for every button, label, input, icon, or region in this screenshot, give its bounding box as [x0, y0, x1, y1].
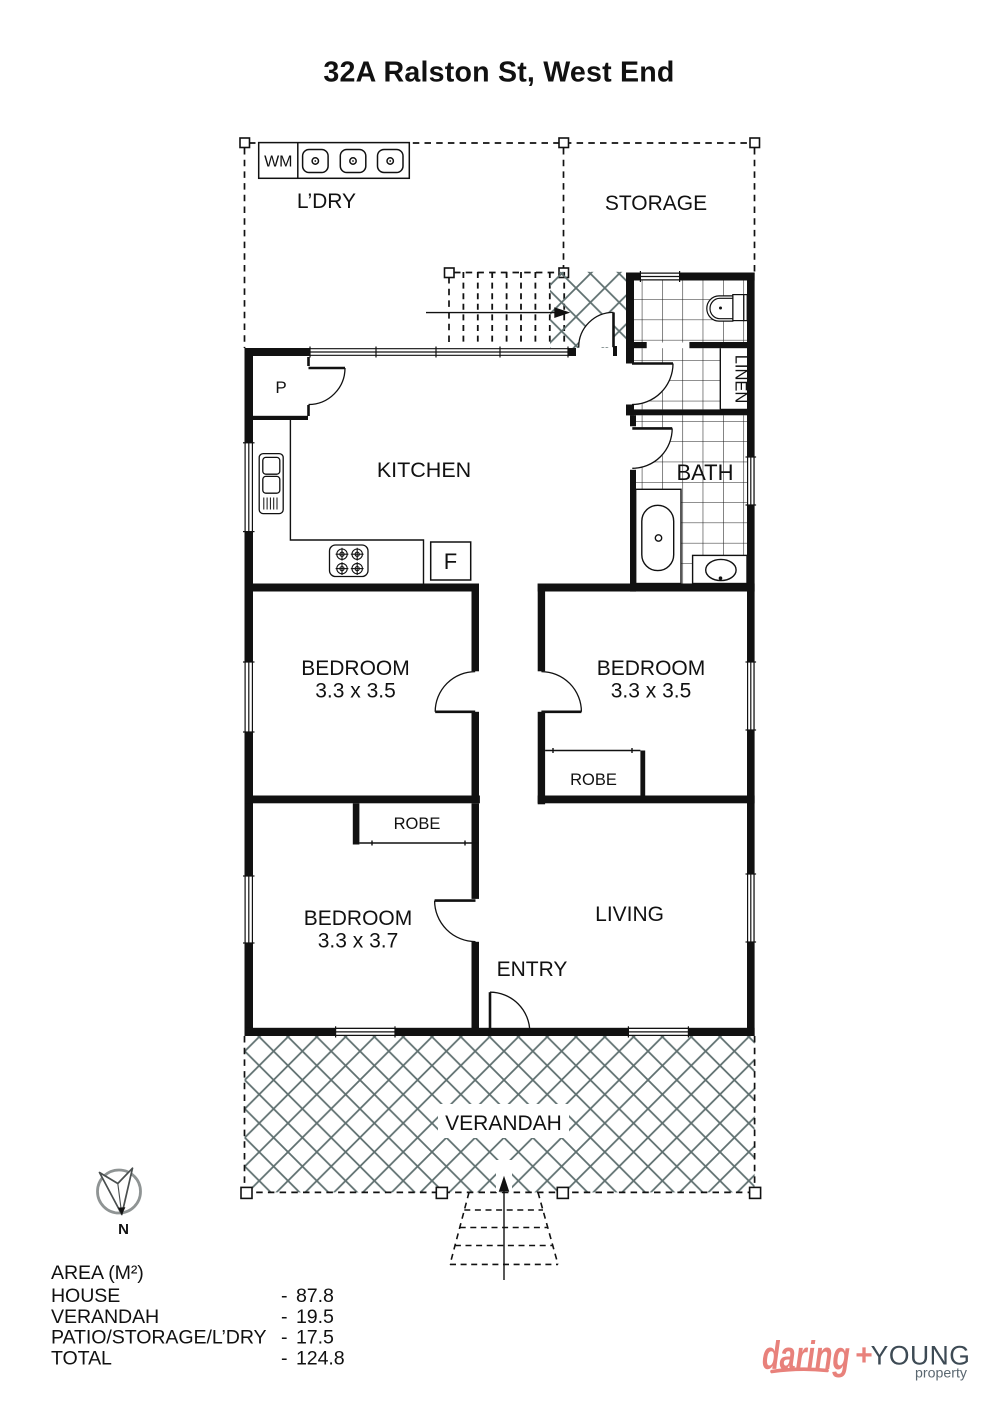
svg-text:BEDROOM: BEDROOM	[304, 907, 413, 930]
svg-text:ROBE: ROBE	[394, 815, 441, 833]
svg-text:P: P	[275, 378, 286, 397]
svg-text:VERANDAH: VERANDAH	[445, 1112, 562, 1135]
svg-text:124.8: 124.8	[296, 1347, 345, 1369]
svg-text:BEDROOM: BEDROOM	[597, 657, 706, 680]
svg-text:N: N	[118, 1221, 129, 1238]
svg-text:32A Ralston St, West End: 32A Ralston St, West End	[323, 57, 674, 89]
svg-text:17.5: 17.5	[296, 1327, 334, 1349]
svg-text:-: -	[281, 1347, 287, 1369]
svg-text:LINEN: LINEN	[732, 355, 750, 404]
svg-text:HOUSE: HOUSE	[51, 1285, 120, 1307]
svg-text:AREA (M²): AREA (M²)	[51, 1262, 144, 1284]
svg-text:ROBE: ROBE	[570, 771, 617, 789]
svg-text:STORAGE: STORAGE	[605, 192, 707, 215]
svg-text:WM: WM	[264, 154, 292, 171]
svg-text:BATH: BATH	[676, 460, 733, 485]
svg-text:87.8: 87.8	[296, 1285, 334, 1307]
svg-text:LIVING: LIVING	[595, 903, 664, 926]
svg-text:property: property	[915, 1365, 967, 1381]
svg-text:L’DRY: L’DRY	[297, 190, 356, 213]
svg-text:-: -	[281, 1285, 287, 1307]
svg-text:F: F	[444, 549, 457, 574]
svg-text:TOTAL: TOTAL	[51, 1347, 112, 1369]
svg-text:-: -	[281, 1306, 287, 1328]
svg-text:19.5: 19.5	[296, 1306, 334, 1328]
svg-text:3.3 x 3.5: 3.3 x 3.5	[611, 680, 692, 703]
svg-text:KITCHEN: KITCHEN	[377, 458, 471, 482]
svg-text:-: -	[281, 1327, 287, 1349]
svg-text:BEDROOM: BEDROOM	[301, 657, 410, 680]
svg-text:VERANDAH: VERANDAH	[51, 1306, 159, 1328]
svg-text:3.3 x 3.5: 3.3 x 3.5	[315, 680, 396, 703]
svg-text:ENTRY: ENTRY	[497, 958, 568, 981]
svg-text:3.3 x 3.7: 3.3 x 3.7	[318, 930, 399, 953]
svg-text:PATIO/STORAGE/L’DRY: PATIO/STORAGE/L’DRY	[51, 1327, 267, 1349]
